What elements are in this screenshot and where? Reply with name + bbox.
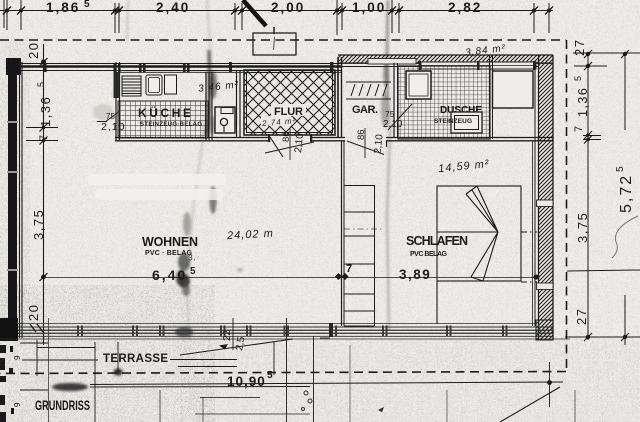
svg-text:2,82: 2,82 bbox=[448, 0, 482, 15]
svg-text:GAR.: GAR. bbox=[352, 104, 378, 116]
svg-text:5: 5 bbox=[267, 370, 273, 381]
svg-text:5: 5 bbox=[36, 82, 46, 87]
svg-text:5: 5 bbox=[573, 76, 583, 81]
svg-text:STEINZEUG: STEINZEUG bbox=[434, 118, 472, 125]
svg-text:6,40: 6,40 bbox=[152, 267, 187, 283]
svg-text:22: 22 bbox=[222, 329, 233, 341]
svg-text:5,72: 5,72 bbox=[618, 174, 635, 213]
svg-text:20: 20 bbox=[26, 304, 41, 321]
svg-text:86: 86 bbox=[281, 131, 292, 142]
svg-text:24,02 m: 24,02 m bbox=[226, 228, 274, 242]
svg-text:1,00: 1,00 bbox=[352, 0, 386, 15]
svg-text:9: 9 bbox=[13, 355, 22, 360]
svg-text:75: 75 bbox=[106, 112, 115, 121]
svg-text:5: 5 bbox=[190, 266, 196, 277]
svg-text:WOHNEN: WOHNEN bbox=[142, 235, 198, 249]
svg-text:3,75: 3,75 bbox=[575, 212, 590, 243]
svg-text:2,10: 2,10 bbox=[373, 133, 386, 154]
svg-text:10,90: 10,90 bbox=[227, 374, 266, 389]
svg-text:86: 86 bbox=[356, 129, 367, 140]
svg-text:20: 20 bbox=[26, 42, 41, 59]
svg-text:2,40: 2,40 bbox=[156, 0, 190, 15]
svg-text:STEINZEUG·BELAG: STEINZEUG·BELAG bbox=[140, 122, 202, 128]
svg-text:2,10: 2,10 bbox=[101, 121, 125, 133]
svg-text:7: 7 bbox=[38, 133, 50, 141]
svg-text:27: 27 bbox=[574, 308, 589, 325]
svg-text:1,36: 1,36 bbox=[38, 96, 53, 127]
svg-text:9: 9 bbox=[13, 402, 22, 407]
svg-text:2,10: 2,10 bbox=[293, 132, 306, 153]
svg-text:2,00: 2,00 bbox=[271, 0, 305, 15]
svg-text:TERRASSE: TERRASSE bbox=[103, 353, 168, 365]
svg-text:GRUNDRISS: GRUNDRISS bbox=[35, 397, 90, 413]
svg-text:3,75: 3,75 bbox=[31, 209, 46, 240]
svg-text:1,36: 1,36 bbox=[576, 87, 590, 117]
svg-text:7: 7 bbox=[346, 263, 352, 275]
svg-text:75: 75 bbox=[385, 109, 395, 119]
svg-text:27: 27 bbox=[572, 39, 587, 56]
svg-text:PVC · BELAG: PVC · BELAG bbox=[145, 250, 193, 257]
svg-text:7: 7 bbox=[573, 124, 585, 132]
svg-text:3,·: 3,· bbox=[187, 252, 200, 263]
svg-text:5: 5 bbox=[84, 0, 90, 10]
svg-text:5: 5 bbox=[615, 166, 626, 172]
svg-text:KÜCHE: KÜCHE bbox=[138, 105, 191, 120]
svg-text:PVC BELAG: PVC BELAG bbox=[410, 251, 448, 258]
svg-text:3,89: 3,89 bbox=[399, 267, 431, 282]
svg-text:1,86: 1,86 bbox=[46, 0, 80, 15]
